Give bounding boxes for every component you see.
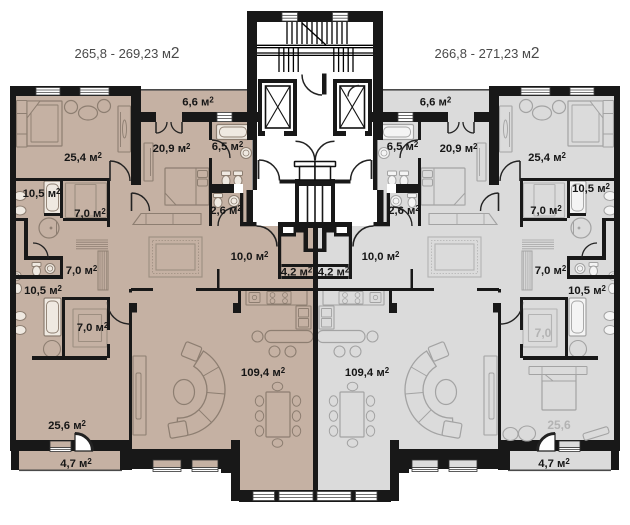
svg-text:109,4 м2: 109,4 м2: [241, 366, 286, 379]
svg-text:25,4 м2: 25,4 м2: [528, 151, 566, 164]
svg-text:266,8 - 271,23 м2: 266,8 - 271,23 м2: [434, 45, 539, 62]
svg-text:10,5 м2: 10,5 м2: [24, 284, 62, 297]
svg-text:25,6: 25,6: [547, 418, 571, 432]
svg-text:20,9 м2: 20,9 м2: [153, 142, 191, 155]
svg-text:10,5 м2: 10,5 м2: [568, 284, 606, 297]
svg-text:7,0: 7,0: [535, 326, 552, 340]
svg-text:10,5 м2: 10,5 м2: [572, 182, 610, 195]
svg-text:10,0 м2: 10,0 м2: [362, 250, 400, 263]
svg-text:10,0 м2: 10,0 м2: [231, 250, 269, 263]
svg-text:25,6 м2: 25,6 м2: [48, 419, 86, 432]
svg-text:109,4 м2: 109,4 м2: [345, 366, 390, 379]
svg-text:20,9 м2: 20,9 м2: [440, 142, 478, 155]
svg-text:265,8 - 269,23 м2: 265,8 - 269,23 м2: [74, 45, 179, 62]
svg-text:25,4 м2: 25,4 м2: [64, 151, 102, 164]
svg-text:10,5 м2: 10,5 м2: [23, 187, 61, 200]
